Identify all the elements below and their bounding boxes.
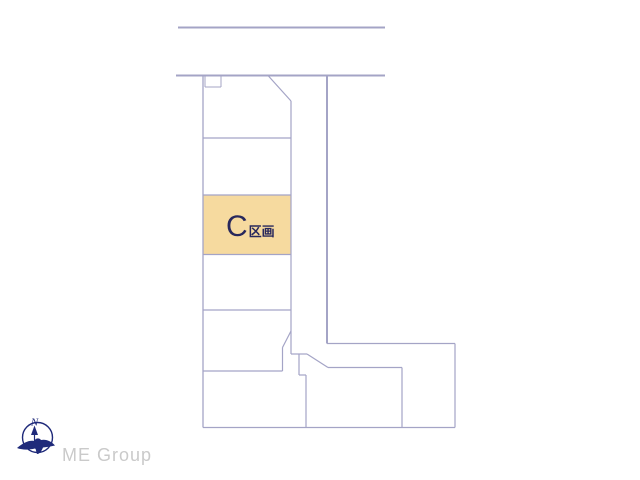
parcel-boundary-line [307, 354, 328, 368]
me-group-logo: N ME Group [0, 414, 220, 474]
plot-map-page: C 区画 N ME Group [0, 0, 640, 480]
highlighted-parcel-c [204, 196, 291, 255]
logo-company-name: ME Group [62, 445, 152, 466]
parcel-boundary-line [283, 331, 292, 348]
compass-north-icon: N [14, 414, 64, 464]
plot-map [0, 0, 640, 480]
parcel-boundary-line [268, 76, 291, 102]
